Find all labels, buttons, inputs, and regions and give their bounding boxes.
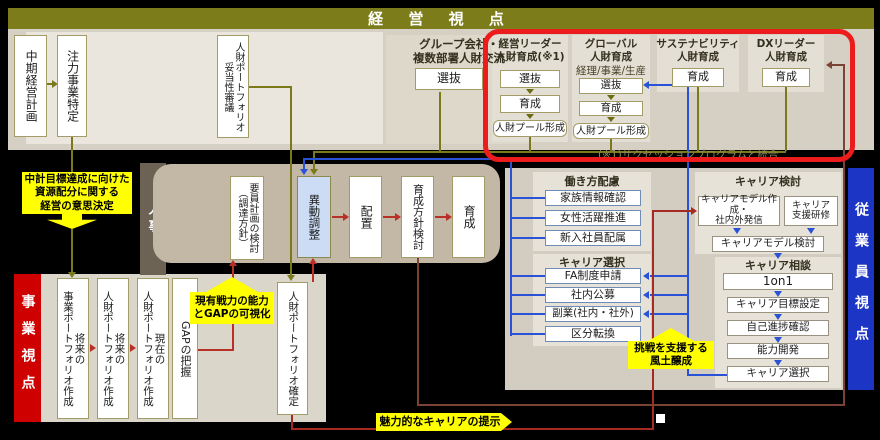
side-job-box: 副業(社内・社外) (545, 306, 641, 322)
right-arrowhead-icon (691, 207, 697, 215)
workstyle-title: 働き方配慮 (533, 175, 651, 188)
category-change-box: 区分転換 (545, 326, 641, 342)
left-arrowhead-icon (643, 272, 649, 280)
business-perspective-bar: 事業視点 (14, 274, 41, 422)
career-model-review-box: キャリアモデル検討 (712, 236, 824, 252)
decision-callout: 中計目標達成に向けた 資源配分に関する 経営の意思決定 (22, 172, 132, 214)
portfolio-review-box: 人財ポートフォリオ 妥当性審議 (217, 35, 249, 138)
family-info-box: 家族情報確認 (545, 190, 641, 206)
legend-square (656, 414, 665, 423)
connector (652, 210, 692, 212)
hr-dev-policy-box: 育成方針検討 (401, 176, 434, 258)
left-arrowhead-icon (643, 291, 649, 299)
career-consult-title: キャリア相談 (715, 259, 841, 272)
portfolio-fix-box: 人財ポートフォリオ確定 (277, 282, 308, 415)
future-talent-portfolio-box: 将来の 人財ポートフォリオ作成 (97, 278, 129, 419)
left-arrowhead-icon (643, 310, 649, 318)
connector (312, 264, 314, 282)
connector (512, 294, 545, 296)
slide-canvas: 経 営 視 点 中期経営計画 注力事業特定 人財ポートフォリオ 妥当性審議 グル… (0, 0, 880, 440)
highlight-frame (483, 29, 855, 162)
connector (435, 216, 446, 218)
connector (71, 137, 73, 172)
career-training-box: キャリア 支援研修 (784, 196, 838, 226)
skill-dev-box: 能力開発 (727, 343, 829, 359)
hr-staffing-plan-box: 要員計画の検討 （調達方針） (230, 176, 264, 260)
career-choice-box: キャリア選択 (727, 366, 829, 382)
connector (512, 237, 545, 239)
connector (650, 313, 687, 315)
focus-business-box: 注力事業特定 (57, 35, 87, 137)
connector (71, 229, 73, 273)
group-exchange-select-box: 選抜 (415, 68, 483, 90)
connector (512, 333, 545, 335)
connector (249, 86, 291, 88)
management-perspective-label: 経 営 視 点 (368, 8, 514, 29)
right-arrowhead-icon (130, 344, 136, 352)
hr-placement-box: 配置 (349, 176, 382, 258)
connector (650, 294, 687, 296)
down-arrowhead-icon (300, 169, 308, 175)
down-arrowhead-icon (310, 169, 318, 175)
women-advance-box: 女性活躍推進 (545, 210, 641, 226)
connector (512, 313, 545, 315)
business-perspective-label: 事業視点 (18, 294, 38, 402)
hr-transfer-box: 異動調整 (297, 176, 331, 258)
right-arrowhead-icon (90, 344, 96, 352)
connector (417, 404, 845, 406)
connector (652, 210, 654, 430)
hr-develop-box: 育成 (452, 176, 485, 258)
internal-recruit-box: 社内公募 (545, 287, 641, 303)
employee-perspective-bar: 従業員視点 (848, 168, 874, 390)
connector (417, 258, 419, 406)
new-hire-box: 新入社員配属 (545, 230, 641, 246)
future-business-portfolio-box: 将来の 事業ポートフォリオ作成 (57, 278, 89, 419)
connector (198, 349, 234, 351)
connector (383, 216, 395, 218)
connector (313, 153, 315, 169)
connector (512, 275, 545, 277)
connector (512, 217, 545, 219)
fa-system-box: FA制度申請 (545, 268, 641, 284)
down-arrow-icon (733, 228, 741, 234)
decision-down-arrow-icon (47, 214, 97, 229)
career-model-create-box: キャリアモデル作成・ 社内外発信 (698, 196, 780, 226)
down-arrowhead-icon (287, 275, 295, 281)
connector (439, 92, 441, 151)
culture-callout: 挑戦を支援する 風土醸成 (628, 341, 714, 369)
management-perspective-header: 経 営 視 点 (8, 8, 874, 29)
mid-term-plan-box: 中期経営計画 (14, 35, 47, 137)
connector (650, 275, 687, 277)
career-offer-callout: 魅力的なキャリアの提示 (376, 413, 512, 431)
connector (510, 160, 512, 336)
connector (689, 374, 727, 376)
gap-viz-callout: 現有戦力の能力 とGAPの可視化 (190, 292, 274, 324)
career-study-title: キャリア検討 (695, 175, 841, 188)
up-arrowhead-icon (229, 260, 237, 266)
career-goal-box: キャリア目標設定 (727, 297, 829, 313)
employee-perspective-label: 従業員視点 (851, 202, 871, 357)
up-arrowhead-icon (309, 258, 317, 264)
self-progress-box: 自己進捗確認 (727, 320, 829, 336)
current-talent-portfolio-box: 現在の 人財ポートフォリオ作成 (137, 278, 169, 419)
connector (512, 197, 545, 199)
down-arrow-icon (807, 228, 815, 234)
connector (290, 86, 292, 276)
oneonone-box: 1on1 (723, 273, 833, 290)
